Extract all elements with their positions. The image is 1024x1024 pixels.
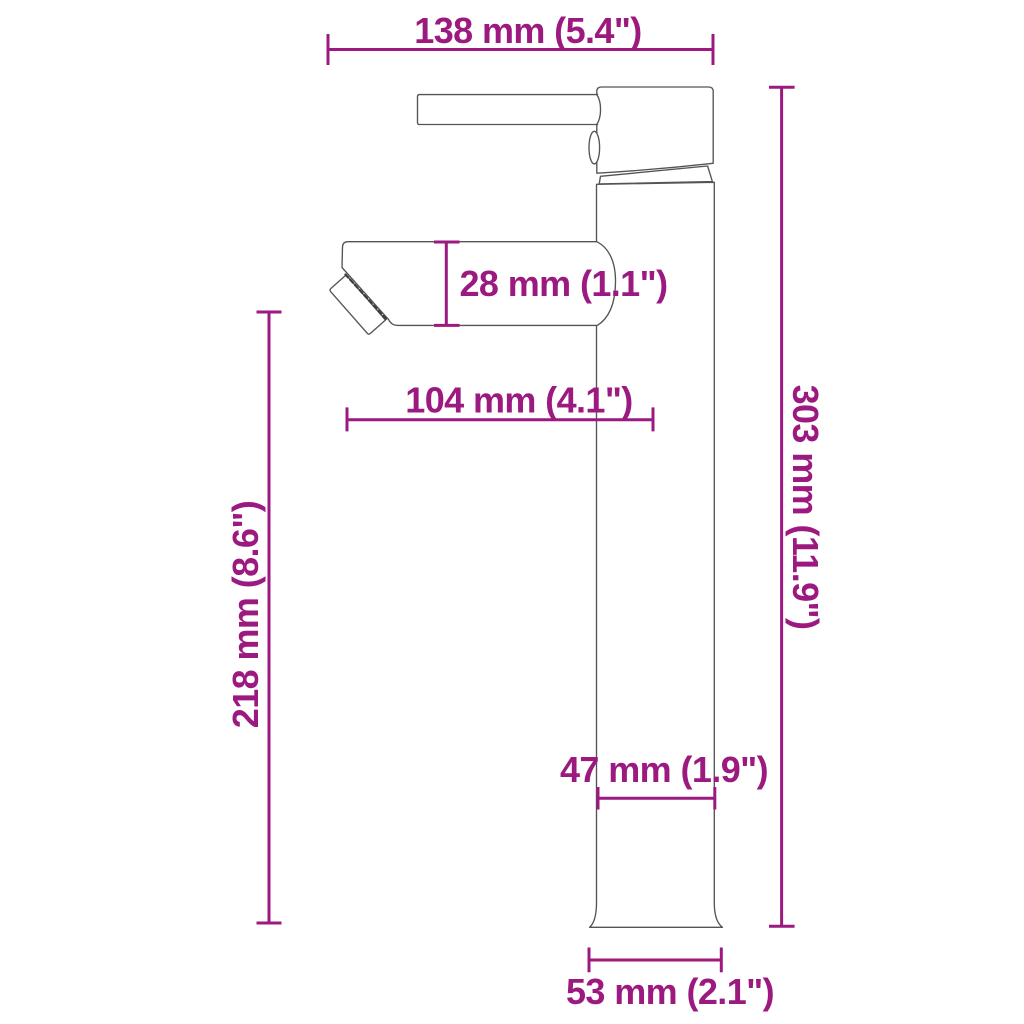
svg-text:104 mm (4.1"): 104 mm (4.1") [405,380,632,421]
svg-text:28 mm (1.1"): 28 mm (1.1") [460,263,668,304]
svg-text:218 mm (8.6"): 218 mm (8.6") [225,501,266,728]
svg-text:138 mm (5.4"): 138 mm (5.4") [414,10,641,51]
svg-text:303 mm (11.9"): 303 mm (11.9") [785,385,826,630]
svg-text:53 mm (2.1"): 53 mm (2.1") [566,971,774,1012]
svg-text:47 mm (1.9"): 47 mm (1.9") [560,749,768,790]
